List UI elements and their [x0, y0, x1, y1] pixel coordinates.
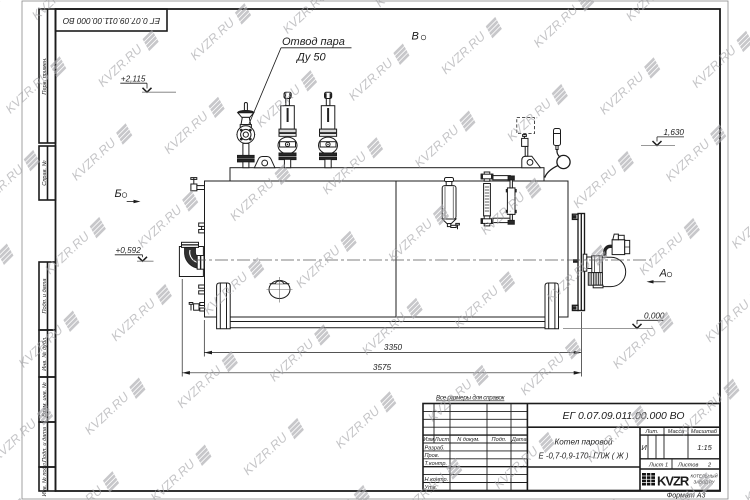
- svg-text:Отвод пара: Отвод пара: [282, 36, 345, 48]
- svg-text:Лист: Лист: [648, 462, 664, 468]
- svg-text:+2,115: +2,115: [121, 75, 146, 84]
- svg-text:Справ. №: Справ. №: [42, 160, 48, 185]
- svg-text:Дата: Дата: [511, 437, 527, 443]
- svg-text:В: В: [412, 31, 419, 43]
- svg-text:KVZR: KVZR: [657, 474, 690, 489]
- svg-text:Пров.: Пров.: [425, 453, 440, 459]
- svg-text:+0,592: +0,592: [116, 246, 142, 255]
- svg-text:Инв. № подл.: Инв. № подл.: [42, 462, 48, 497]
- svg-text:Подп. и дата: Подп. и дата: [42, 427, 48, 462]
- svg-text:Масштаб: Масштаб: [691, 429, 718, 435]
- svg-text:Подп. и дата: Подп. и дата: [42, 278, 48, 313]
- svg-text:N докум.: N докум.: [457, 437, 480, 443]
- svg-text:Т.контр.: Т.контр.: [425, 461, 448, 467]
- svg-text:Б: Б: [115, 188, 122, 200]
- svg-text:Листов: Листов: [677, 462, 698, 468]
- svg-text:А: А: [659, 268, 667, 280]
- svg-text:ЕГ 0.07.09.011.00.000 ВО: ЕГ 0.07.09.011.00.000 ВО: [62, 16, 160, 26]
- svg-text:Разраб.: Разраб.: [425, 445, 445, 451]
- svg-text:3575: 3575: [373, 363, 392, 372]
- svg-text:1: 1: [665, 462, 668, 468]
- svg-text:Лист: Лист: [434, 437, 450, 443]
- svg-text:1,630: 1,630: [664, 128, 685, 137]
- svg-text:Подп.: Подп.: [492, 437, 507, 443]
- svg-text:Лит.: Лит.: [644, 429, 658, 435]
- svg-text:Ду 50: Ду 50: [295, 52, 327, 64]
- svg-text:И: И: [641, 443, 647, 452]
- svg-text:3350: 3350: [384, 343, 403, 352]
- svg-text:1:15: 1:15: [697, 443, 712, 452]
- svg-text:Изм: Изм: [423, 437, 434, 443]
